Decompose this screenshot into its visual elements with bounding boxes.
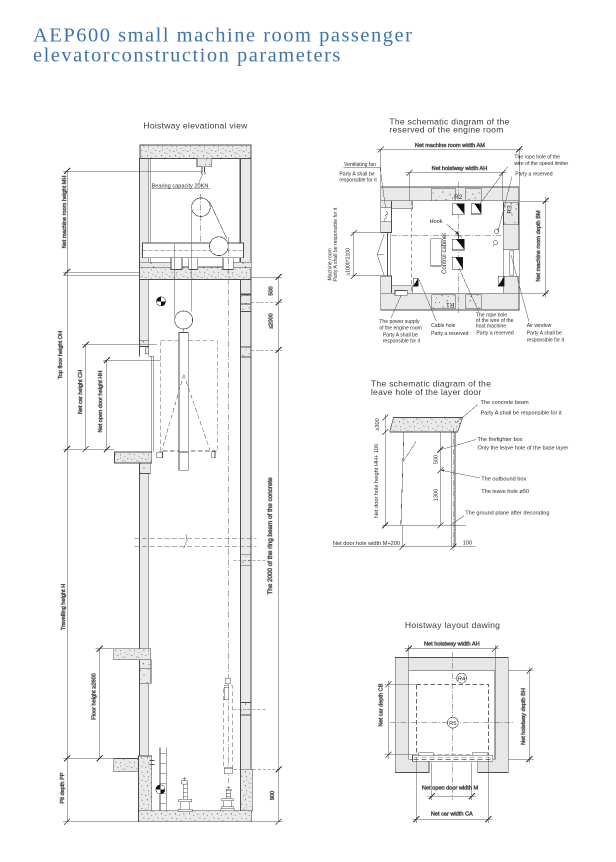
- svg-text:The power supply: The power supply: [379, 319, 420, 325]
- svg-text:Net hoistway width AH: Net hoistway width AH: [432, 166, 488, 172]
- svg-text:The leave hole ø50: The leave hole ø50: [481, 489, 529, 495]
- svg-text:responsible for it: responsible for it: [527, 337, 565, 343]
- svg-text:reserved of the engine room: reserved of the engine room: [389, 125, 503, 135]
- svg-text:Control cabinet: Control cabinet: [441, 233, 448, 274]
- svg-text:Party A shall be responsible f: Party A shall be responsible for it: [333, 207, 339, 281]
- svg-text:Net open door width M: Net open door width M: [422, 785, 479, 791]
- svg-text:Party a reserved: Party a reserved: [476, 331, 514, 337]
- svg-text:Net hoistway width AH: Net hoistway width AH: [424, 642, 480, 648]
- svg-text:responsible for it: responsible for it: [383, 339, 421, 345]
- svg-text:R3: R3: [507, 205, 514, 214]
- svg-text:Hoistway elevational view: Hoistway elevational view: [143, 121, 248, 131]
- svg-text:wire of the speed limiter: wire of the speed limiter: [514, 161, 568, 167]
- svg-text:R5: R5: [449, 721, 456, 727]
- svg-text:Party A shall be: Party A shall be: [527, 331, 562, 337]
- svg-text:Net machine room height MH: Net machine room height MH: [62, 176, 68, 249]
- svg-text:Party a reserved: Party a reserved: [515, 172, 553, 178]
- svg-text:≥300: ≥300: [375, 418, 381, 430]
- svg-text:Net car width CA: Net car width CA: [431, 811, 473, 817]
- svg-text:1300: 1300: [434, 489, 440, 501]
- svg-text:Net machine room depth BM: Net machine room depth BM: [536, 210, 542, 282]
- svg-text:Top floor height OH: Top floor height OH: [58, 331, 64, 379]
- svg-text:Hook: Hook: [430, 219, 443, 225]
- svg-text:AEP600 small machine room pass: AEP600 small machine room passenger: [33, 25, 413, 47]
- svg-text:Cable hole: Cable hole: [431, 323, 456, 329]
- svg-text:The ground plane after decorat: The ground plane after decorating: [465, 511, 549, 517]
- svg-text:host machine: host machine: [476, 324, 506, 330]
- svg-text:500: 500: [269, 286, 275, 295]
- svg-text:The concrete beam: The concrete beam: [481, 400, 530, 406]
- svg-text:900: 900: [270, 791, 276, 800]
- svg-text:Net machine room width AM: Net machine room width AM: [415, 143, 485, 149]
- svg-text:Net hoistway depth BH: Net hoistway depth BH: [521, 688, 527, 745]
- svg-text:The outbound box: The outbound box: [481, 477, 526, 483]
- svg-text:The rope hole of the: The rope hole of the: [514, 155, 560, 161]
- svg-text:Net door hole width M+200: Net door hole width M+200: [333, 541, 400, 547]
- svg-text:Net car depth CB: Net car depth CB: [379, 683, 385, 726]
- svg-text:Net open door height HH: Net open door height HH: [98, 371, 104, 433]
- svg-text:Party A shall be responsible f: Party A shall be responsible for it: [481, 411, 563, 417]
- svg-text:Net door hole height HH+ 100: Net door hole height HH+ 100: [374, 444, 380, 518]
- svg-text:responsible for it: responsible for it: [339, 177, 377, 183]
- svg-text:≤2000: ≤2000: [269, 313, 275, 329]
- svg-text:The 2000 of the ring beam of t: The 2000 of the ring beam of the concret…: [267, 477, 274, 595]
- svg-text:500: 500: [434, 455, 440, 464]
- svg-text:Hoistway layout dawing: Hoistway layout dawing: [405, 620, 500, 630]
- svg-text:Party a reserved: Party a reserved: [431, 331, 469, 337]
- svg-text:Air window: Air window: [527, 323, 552, 329]
- svg-text:of the engine room: of the engine room: [379, 325, 421, 331]
- svg-text:R1: R1: [446, 301, 455, 308]
- svg-text:Travelling height H: Travelling height H: [61, 584, 67, 630]
- svg-text:Net car height CH: Net car height CH: [78, 370, 84, 414]
- svg-text:Pit depth PP: Pit depth PP: [60, 772, 66, 803]
- svg-text:leave hole of the layer door: leave hole of the layer door: [371, 387, 482, 397]
- svg-text:100: 100: [463, 541, 472, 547]
- svg-text:Party A shall be: Party A shall be: [383, 332, 418, 338]
- svg-text:≥1000*2100: ≥1000*2100: [346, 248, 352, 276]
- svg-text:Bearing capacity 20KN: Bearing capacity 20KN: [152, 183, 209, 189]
- svg-text:R4: R4: [458, 677, 466, 683]
- svg-text:The firefighter box: The firefighter box: [478, 437, 523, 443]
- svg-text:R2: R2: [454, 194, 463, 201]
- svg-text:Floor height ≥2600: Floor height ≥2600: [92, 673, 98, 720]
- svg-text:elevatorconstruction parameter: elevatorconstruction parameters: [33, 45, 342, 67]
- svg-text:Only the leave hole of the bas: Only the leave hole of the base layer: [478, 445, 569, 451]
